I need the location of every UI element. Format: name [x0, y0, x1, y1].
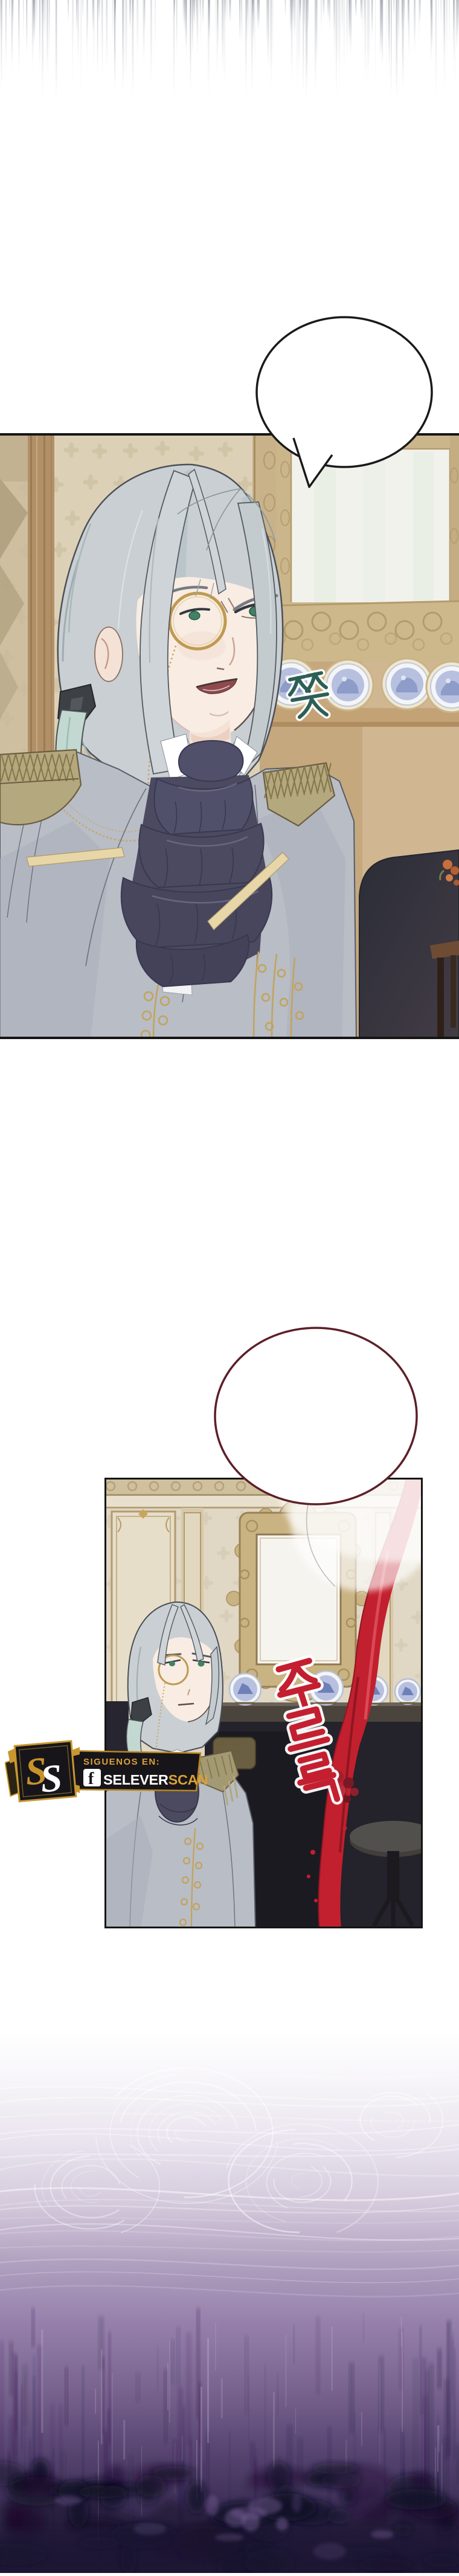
svg-text:SELEVERSCAN: SELEVERSCAN: [103, 1772, 208, 1788]
svg-text:f: f: [88, 1769, 94, 1788]
svg-text:SIGUENOS EN:: SIGUENOS EN:: [83, 1757, 160, 1767]
svg-text:S: S: [39, 1756, 64, 1801]
